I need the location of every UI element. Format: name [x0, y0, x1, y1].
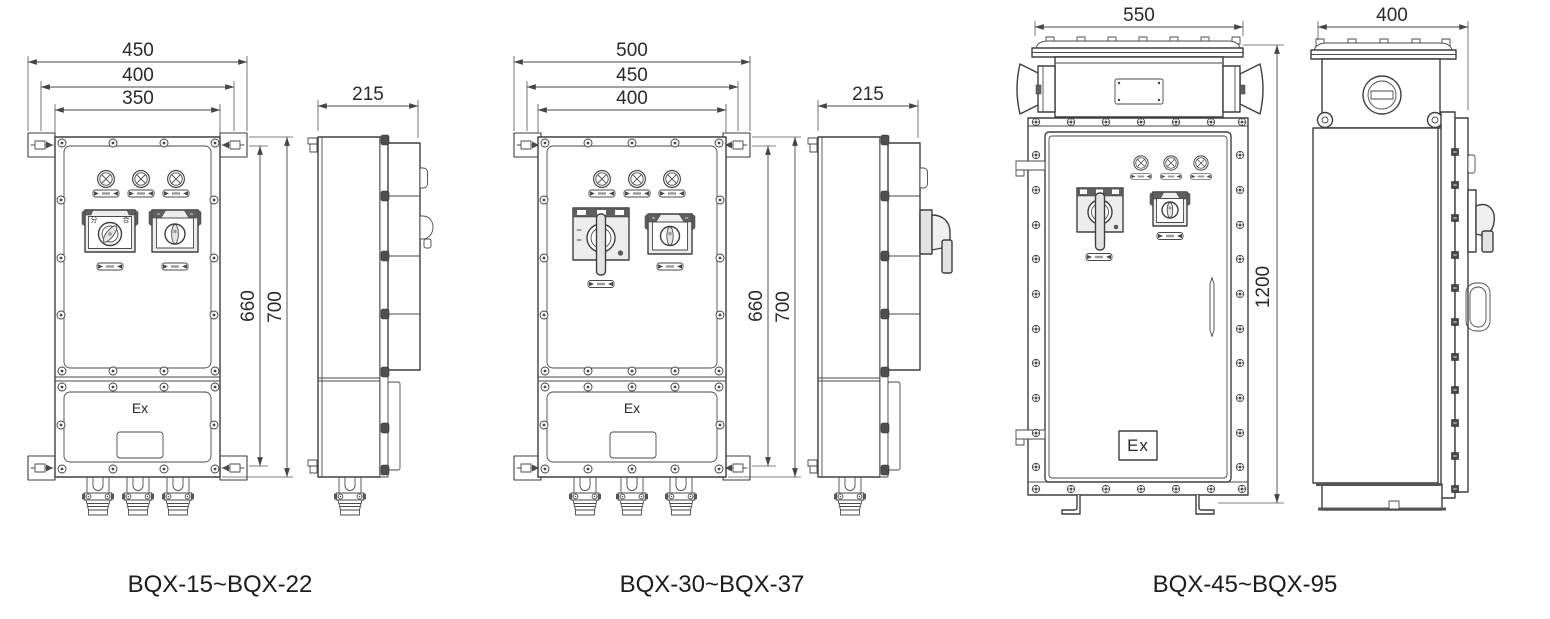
door-handle: [1210, 278, 1214, 337]
dim-overall-width: 550: [1035, 5, 1243, 36]
svg-text:500: 500: [616, 40, 648, 61]
bqx15-front-view: Ex 分 合: [28, 40, 293, 515]
lower-cover-profile: [888, 382, 900, 470]
terminal-box: [1036, 57, 1245, 117]
dim-depth: 215: [318, 84, 418, 138]
svg-text:700: 700: [773, 291, 794, 323]
svg-text:400: 400: [616, 88, 648, 109]
svg-text:Ex: Ex: [1127, 436, 1149, 455]
cable-gland: [834, 478, 866, 515]
side-front-panels: [888, 143, 920, 370]
door-frame-profile: [1441, 112, 1455, 498]
lower-cover-profile: [388, 382, 400, 470]
ex-marking: Ex: [624, 400, 640, 416]
dim-body-width: 350: [55, 88, 220, 133]
svg-text:350: 350: [122, 88, 154, 109]
bqx45-side-view: 400: [1311, 5, 1494, 510]
model-caption: BQX-30~BQX-37: [620, 571, 805, 598]
indicator-lamp: [93, 171, 189, 197]
side-body: [818, 137, 880, 477]
svg-text:400: 400: [1376, 5, 1408, 26]
svg-text:660: 660: [238, 290, 259, 322]
side-body: [1313, 128, 1438, 483]
dim-mount-height: 660: [238, 146, 268, 466]
bqx45-front-view: Ex 550 1200: [1016, 5, 1284, 514]
enclosure-door: [1045, 132, 1231, 482]
cable-gland: [569, 478, 697, 515]
ex-marking: Ex: [1119, 431, 1157, 460]
bqx-enclosure-drawings: Ex 分 合: [0, 0, 1550, 619]
drawing-bqx-15-22: Ex 分 合: [28, 40, 433, 598]
model-caption: BQX-15~BQX-22: [128, 571, 313, 598]
door-handle: [1466, 283, 1490, 331]
drawing-bqx-45-95: Ex 550 1200: [1016, 5, 1494, 598]
switch-open-label: 分: [91, 215, 98, 224]
lamp-dome-profile: [920, 168, 928, 188]
enclosure-body: [538, 137, 726, 477]
svg-text:450: 450: [122, 40, 154, 61]
side-body: [318, 137, 380, 477]
enclosure-body: [55, 137, 220, 477]
switch-handle: [597, 214, 606, 275]
nameplate: [117, 432, 163, 458]
hinge: [808, 138, 817, 473]
dim-depth: 215: [818, 84, 918, 138]
svg-text:1200: 1200: [1253, 266, 1274, 308]
diagram-canvas: Ex 分 合: [0, 0, 1550, 619]
terminal-box-plate: [1115, 79, 1163, 104]
bqx30-front-view: Ex: [514, 40, 801, 515]
svg-text:660: 660: [746, 290, 767, 322]
top-cover: [1311, 39, 1456, 59]
bqx30-side-view: 215: [808, 84, 952, 515]
mounting-feet: [1062, 495, 1214, 514]
dim-body-width: 400: [538, 88, 726, 133]
top-cover: [1032, 37, 1243, 57]
switch-handle: [1096, 193, 1105, 250]
svg-text:215: 215: [352, 84, 384, 105]
dim-mount-height: 660: [746, 146, 776, 466]
switch-handle-profile: [420, 216, 433, 239]
switch-bracket-profile: [920, 210, 932, 254]
switch-handle-profile: [1468, 190, 1494, 252]
lamp-dome-profile: [420, 168, 428, 188]
lamp-dome-profile: [1468, 155, 1475, 173]
drawing-bqx-30-37: Ex: [514, 40, 952, 598]
switch-close-label: 合: [123, 215, 130, 224]
model-caption: BQX-45~BQX-95: [1153, 571, 1338, 598]
cable-gland: [82, 478, 194, 515]
bqx15-side-view: 215: [308, 84, 433, 515]
indicator-lamp: [1131, 156, 1212, 179]
cable-gland: [334, 478, 366, 515]
svg-text:550: 550: [1123, 5, 1155, 26]
ex-marking: Ex: [132, 400, 148, 416]
gland-port: [1363, 76, 1401, 114]
base-plinth: [1316, 484, 1446, 510]
nameplate: [610, 432, 656, 458]
svg-text:215: 215: [852, 84, 884, 105]
svg-text:400: 400: [122, 65, 154, 86]
svg-text:700: 700: [265, 291, 286, 323]
svg-text:450: 450: [616, 65, 648, 86]
hinge: [308, 138, 317, 473]
side-front-panels: [388, 143, 420, 370]
indicator-lamp: [589, 171, 685, 197]
